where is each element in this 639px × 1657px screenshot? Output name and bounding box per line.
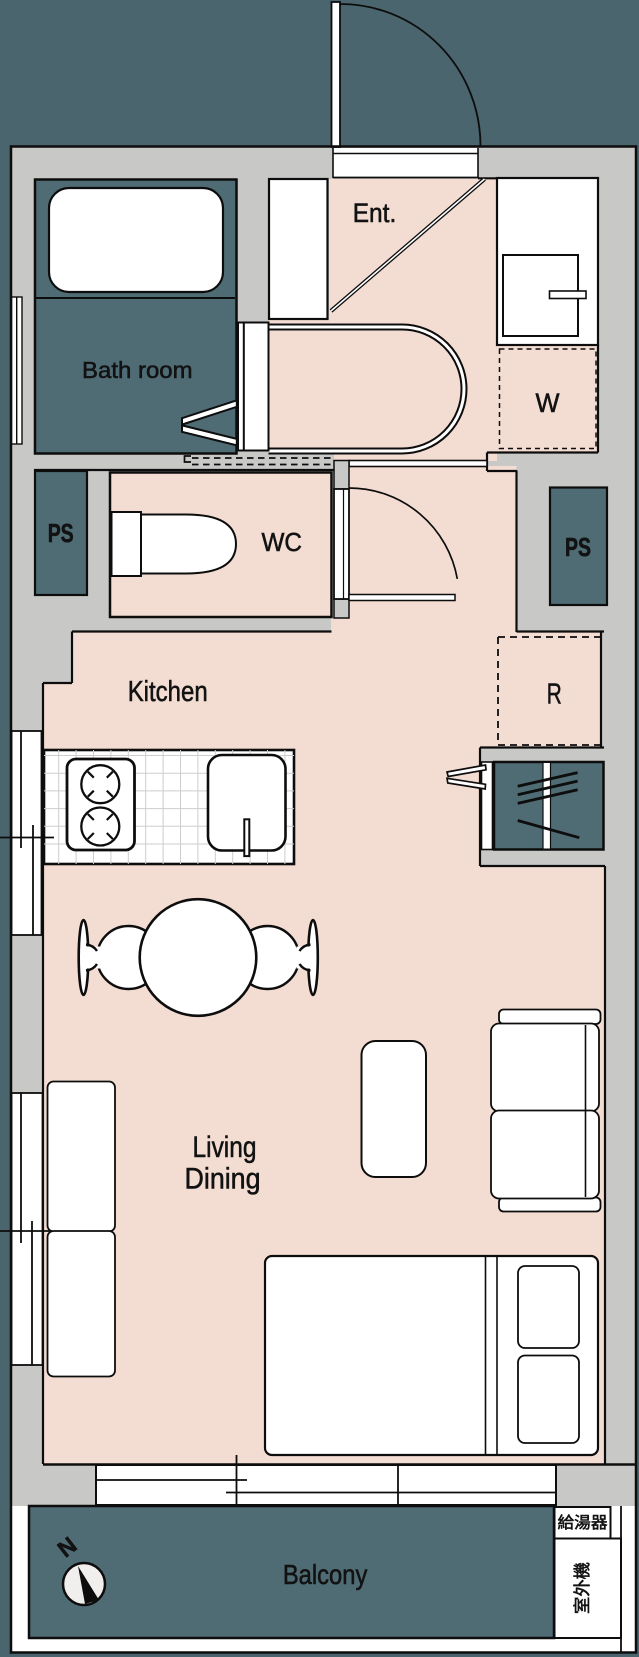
svg-text:PS: PS bbox=[565, 534, 591, 562]
svg-text:給湯器: 給湯器 bbox=[558, 1514, 608, 1532]
svg-text:Dining: Dining bbox=[185, 1163, 261, 1196]
svg-text:室外機: 室外機 bbox=[573, 1562, 592, 1614]
svg-text:WC: WC bbox=[261, 527, 302, 557]
svg-text:Ent.: Ent. bbox=[353, 198, 397, 228]
svg-text:Kitchen: Kitchen bbox=[128, 676, 208, 708]
svg-text:Living: Living bbox=[193, 1131, 257, 1164]
svg-text:PS: PS bbox=[48, 520, 74, 548]
svg-text:Balcony: Balcony bbox=[283, 1559, 368, 1590]
svg-text:W: W bbox=[536, 388, 560, 418]
svg-text:Bath room: Bath room bbox=[82, 357, 193, 383]
svg-text:R: R bbox=[547, 679, 562, 711]
